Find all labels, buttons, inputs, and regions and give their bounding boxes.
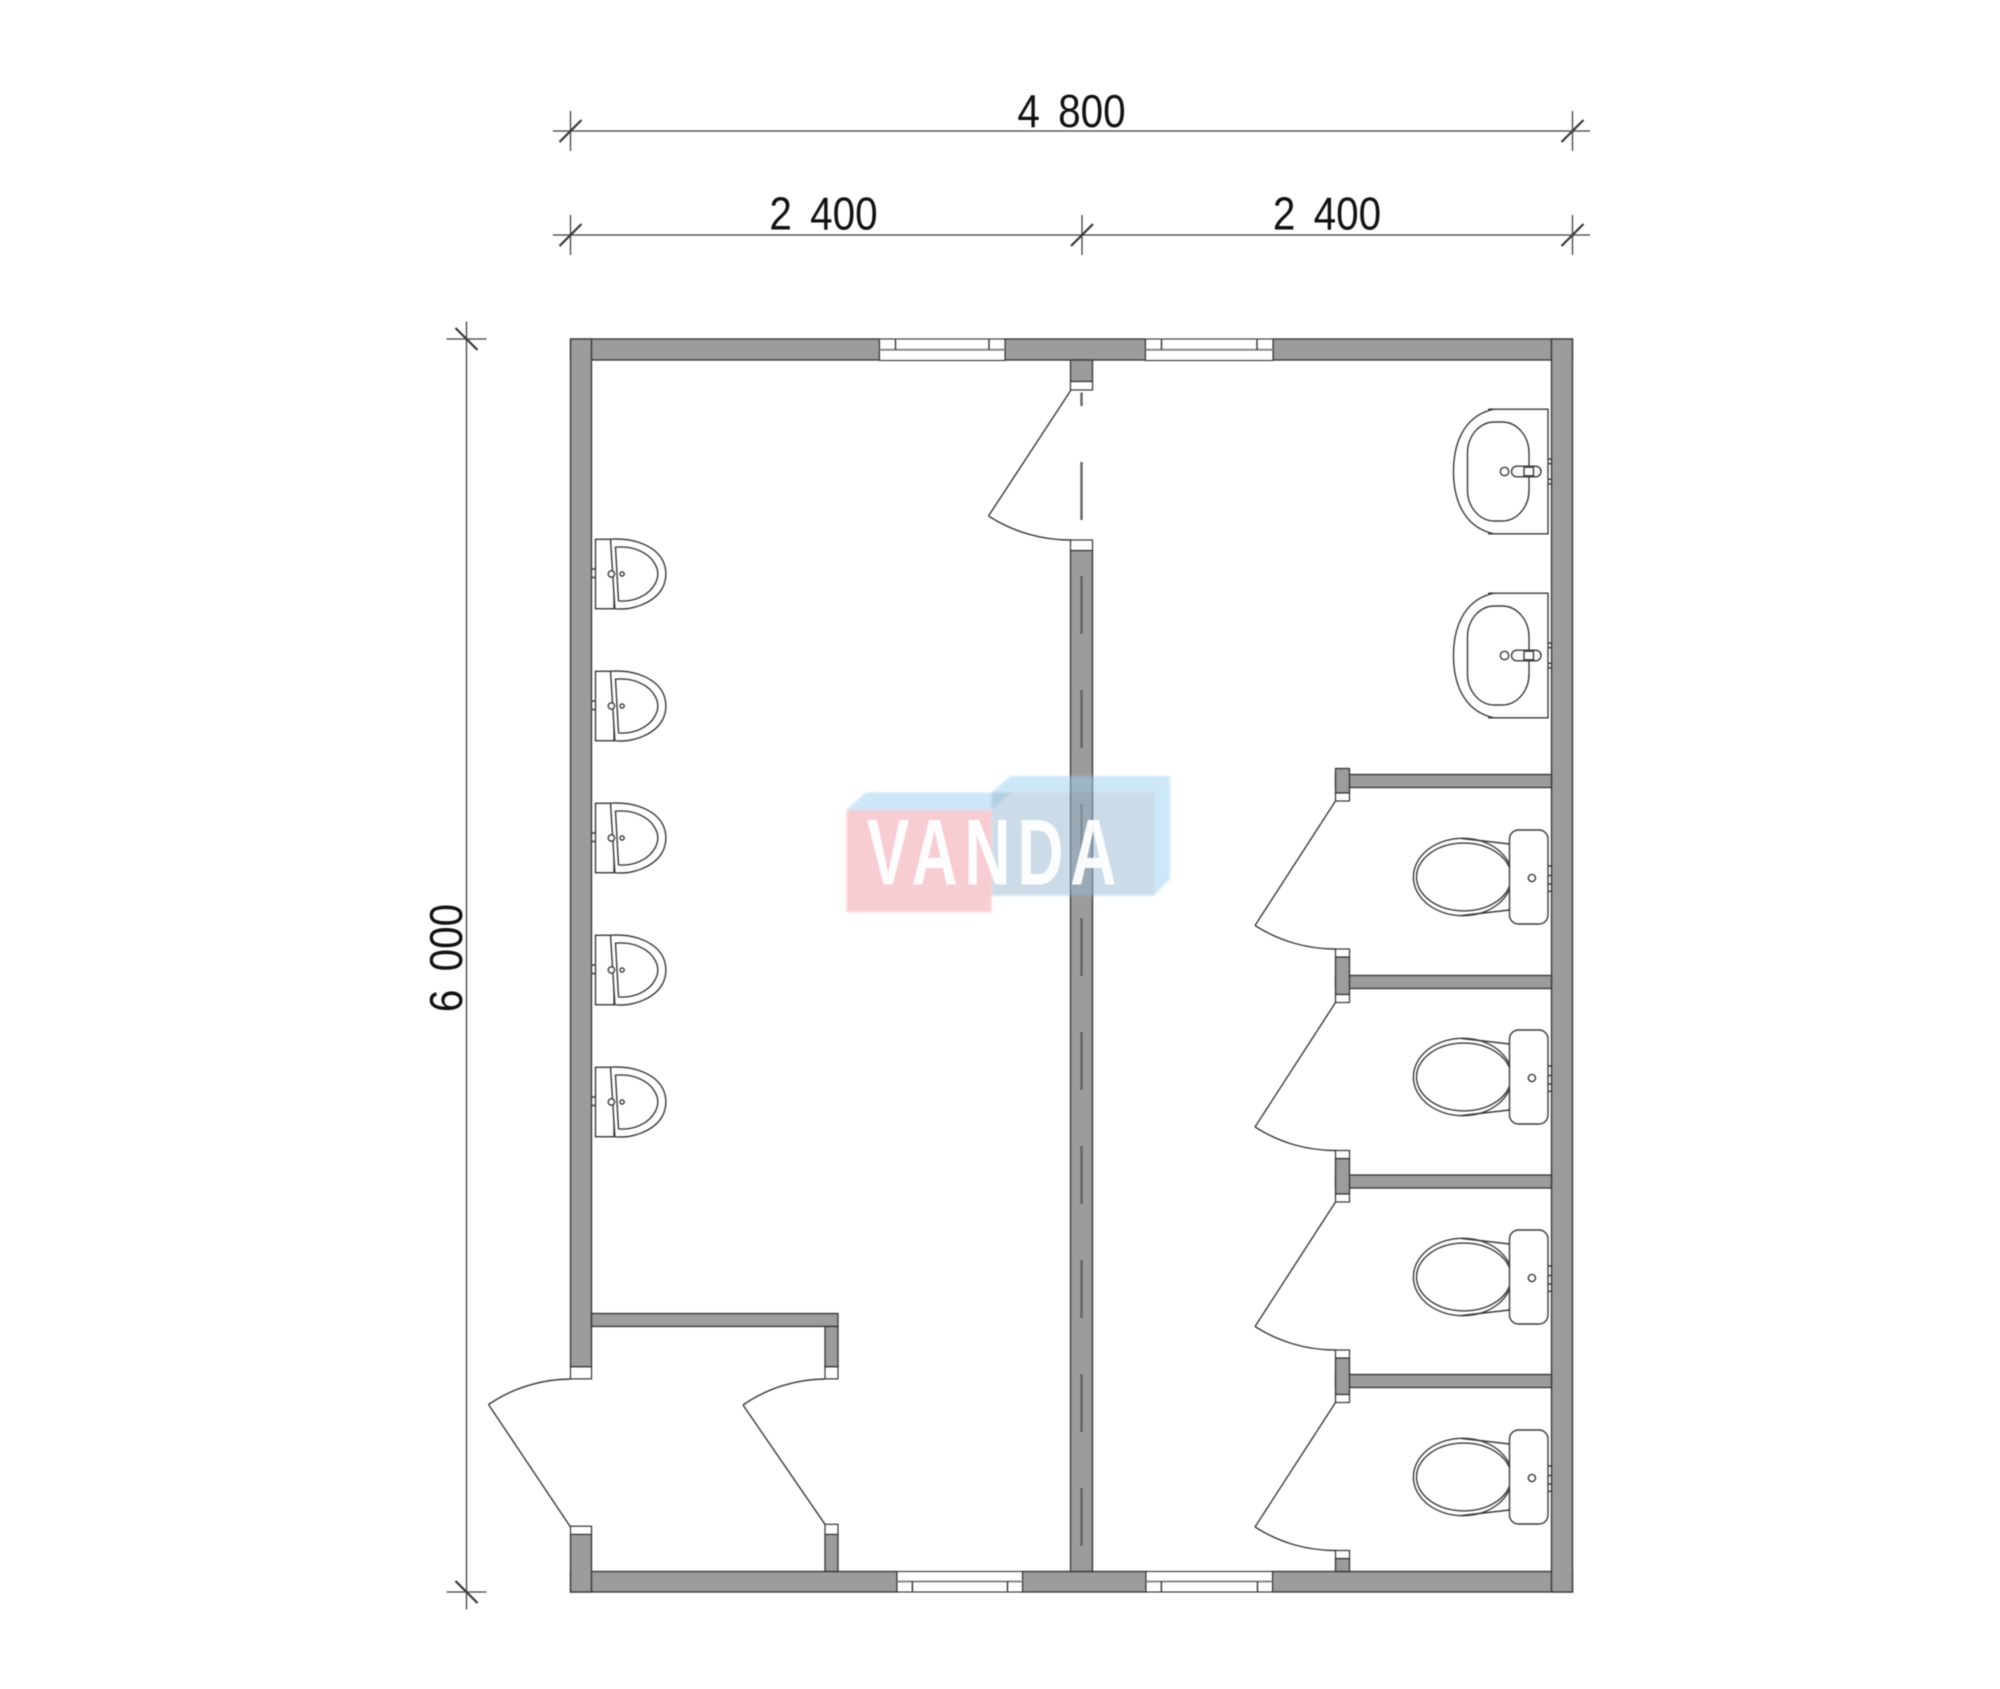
svg-text:2 400: 2 400 [769, 189, 877, 240]
svg-text:2 400: 2 400 [1273, 189, 1381, 240]
svg-text:4 800: 4 800 [1017, 87, 1125, 138]
svg-text:VANDA: VANDA [867, 800, 1123, 905]
svg-text:6 000: 6 000 [422, 904, 473, 1012]
